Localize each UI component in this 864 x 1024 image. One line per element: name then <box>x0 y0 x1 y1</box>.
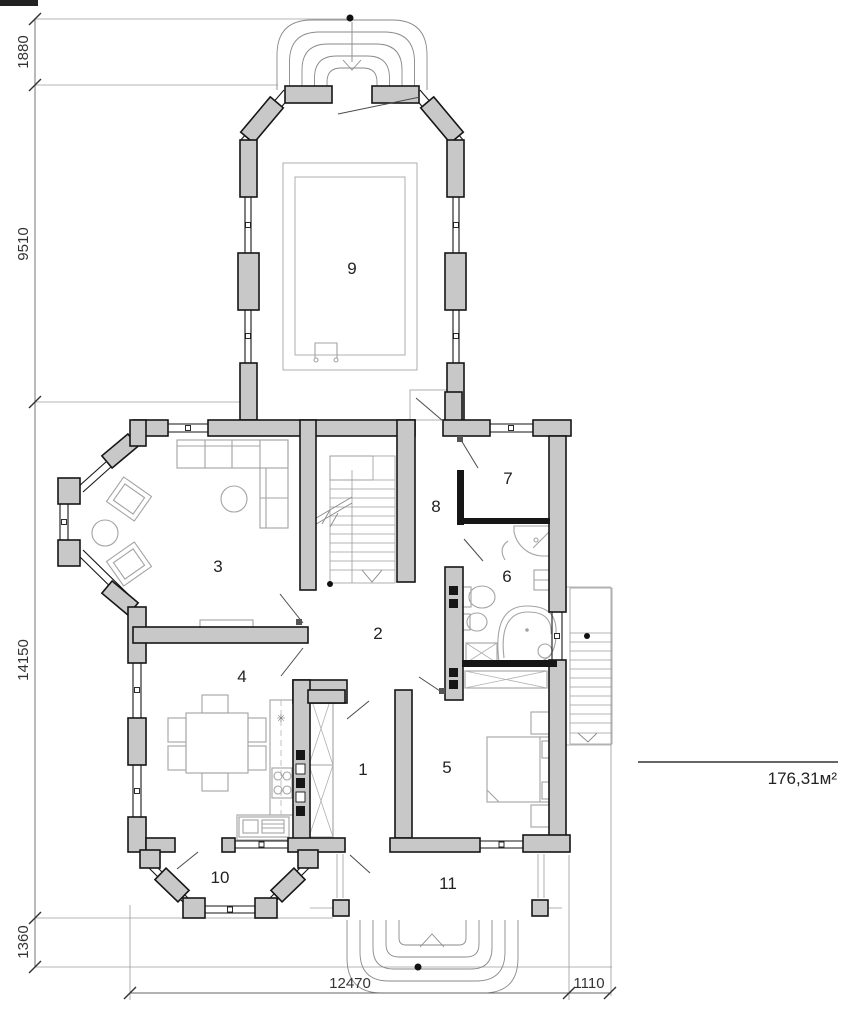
total-area-label: 176,31м² <box>768 769 838 788</box>
center-dot <box>347 15 354 22</box>
room-label-3: 3 <box>213 557 222 576</box>
dining-kitchen-furniture: ✳ <box>168 695 293 840</box>
terrace-outline <box>283 163 448 420</box>
dim-14150: 14150 <box>15 639 32 681</box>
room-label-4: 4 <box>237 667 246 686</box>
floor-plan-canvas: ✳ <box>0 0 864 1024</box>
door-hinge <box>457 436 463 442</box>
east-exterior-stair <box>570 588 612 744</box>
dim-9510: 9510 <box>15 227 32 260</box>
room-label-1: 1 <box>358 760 367 779</box>
dim-1360: 1360 <box>15 925 32 958</box>
door-hinge <box>296 619 302 625</box>
dim-1110: 1110 <box>573 975 604 992</box>
room-numbers: 1 2 3 4 5 6 7 8 9 10 11 <box>211 259 513 893</box>
room-label-9: 9 <box>347 259 356 278</box>
room-label-10: 10 <box>211 868 230 887</box>
total-area: 176,31м² <box>638 762 838 788</box>
room-label-5: 5 <box>442 758 451 777</box>
room-label-2: 2 <box>373 624 382 643</box>
extension-lines <box>35 19 612 1000</box>
dim-1880: 1880 <box>15 35 32 68</box>
entry-steps-top <box>277 15 427 91</box>
room-label-7: 7 <box>503 469 512 488</box>
scan-artifact <box>0 0 38 6</box>
main-staircase <box>306 456 395 587</box>
door-hinge <box>439 688 445 694</box>
porch-and-steps-bottom <box>310 854 562 993</box>
room-label-11: 11 <box>439 874 457 893</box>
bedroom-furniture <box>487 712 557 827</box>
room-label-8: 8 <box>431 497 440 516</box>
dim-12470: 12470 <box>329 975 371 992</box>
floor-plan-page: ✳ <box>0 0 864 1024</box>
kitchen-symbol: ✳ <box>276 713 285 725</box>
room-label-6: 6 <box>502 567 511 586</box>
